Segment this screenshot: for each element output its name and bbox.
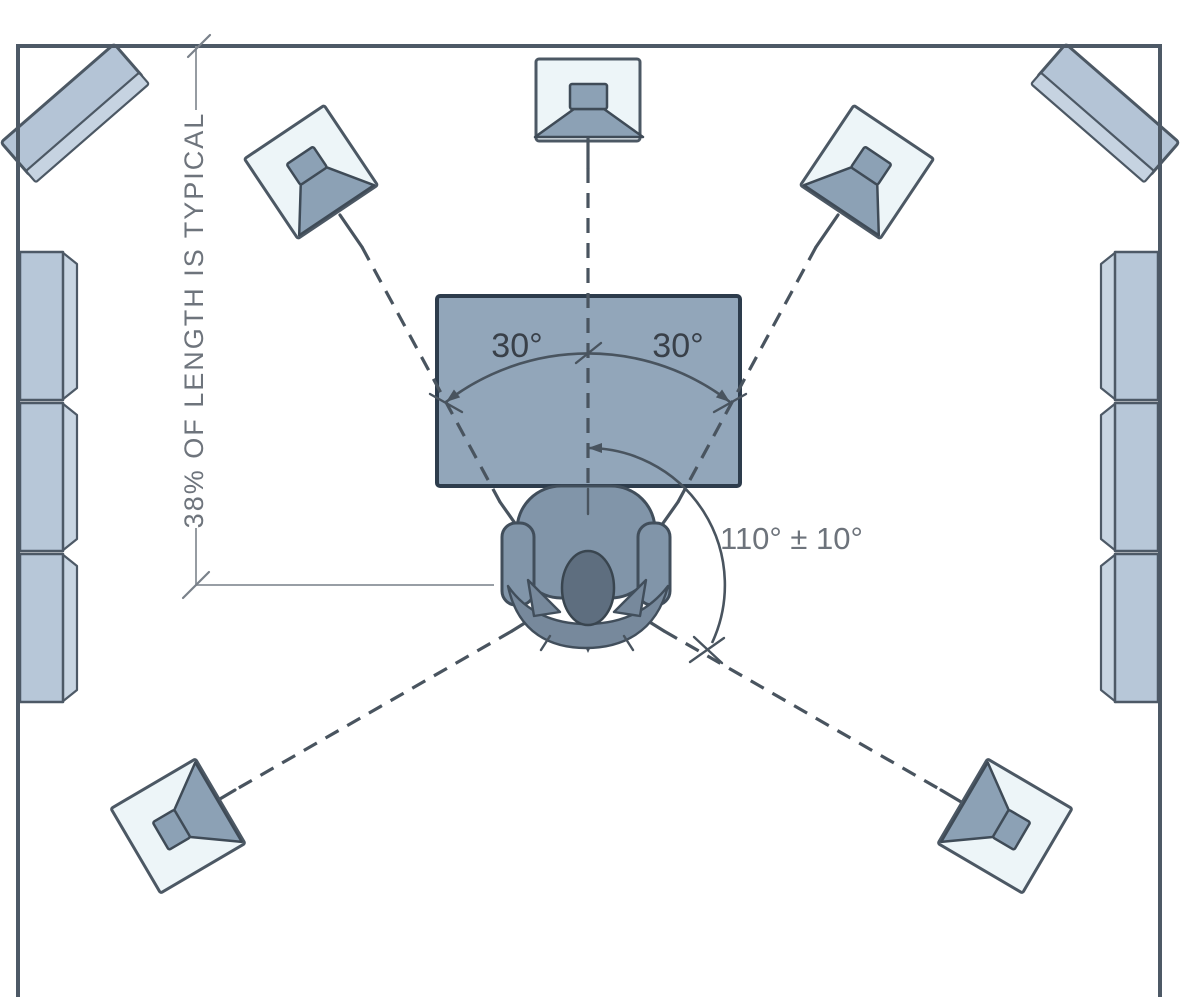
surround-right-aim-line: [640, 616, 973, 809]
corner-speaker-top-left-icon: [1, 44, 149, 182]
surround-right-speaker-icon: [938, 759, 1072, 893]
front-angle-label-left: 30°: [491, 327, 542, 365]
front-left-speaker-icon: [244, 105, 377, 238]
acoustic-panel: [20, 252, 77, 400]
dimension-label: 38% OF LENGTH IS TYPICAL: [179, 112, 209, 529]
speaker-placement-diagram: 38% OF LENGTH IS TYPICAL: [0, 0, 1200, 997]
listener-chair: [502, 486, 670, 650]
corner-speaker-top-right-icon: [1031, 44, 1179, 182]
acoustic-panel: [1101, 554, 1158, 702]
acoustic-panel: [1101, 252, 1158, 400]
diagram-canvas: 38% OF LENGTH IS TYPICAL: [0, 0, 1200, 997]
speaker-magnet-icon: [570, 84, 607, 109]
center-speaker-icon: [535, 59, 643, 141]
front-angle-label-right: 30°: [652, 327, 703, 365]
surround-left-speaker-icon: [111, 759, 245, 893]
surround-angle-label: 110° ± 10°: [720, 521, 863, 556]
front-right-speaker-icon: [800, 105, 933, 238]
acoustic-panel: [20, 403, 77, 551]
listener-head: [562, 551, 614, 625]
left-wall-panels: [20, 252, 77, 702]
acoustic-panel: [1101, 403, 1158, 551]
right-wall-panels: [1101, 252, 1158, 702]
surround-left-aim-line: [203, 616, 536, 809]
acoustic-panel: [20, 554, 77, 702]
